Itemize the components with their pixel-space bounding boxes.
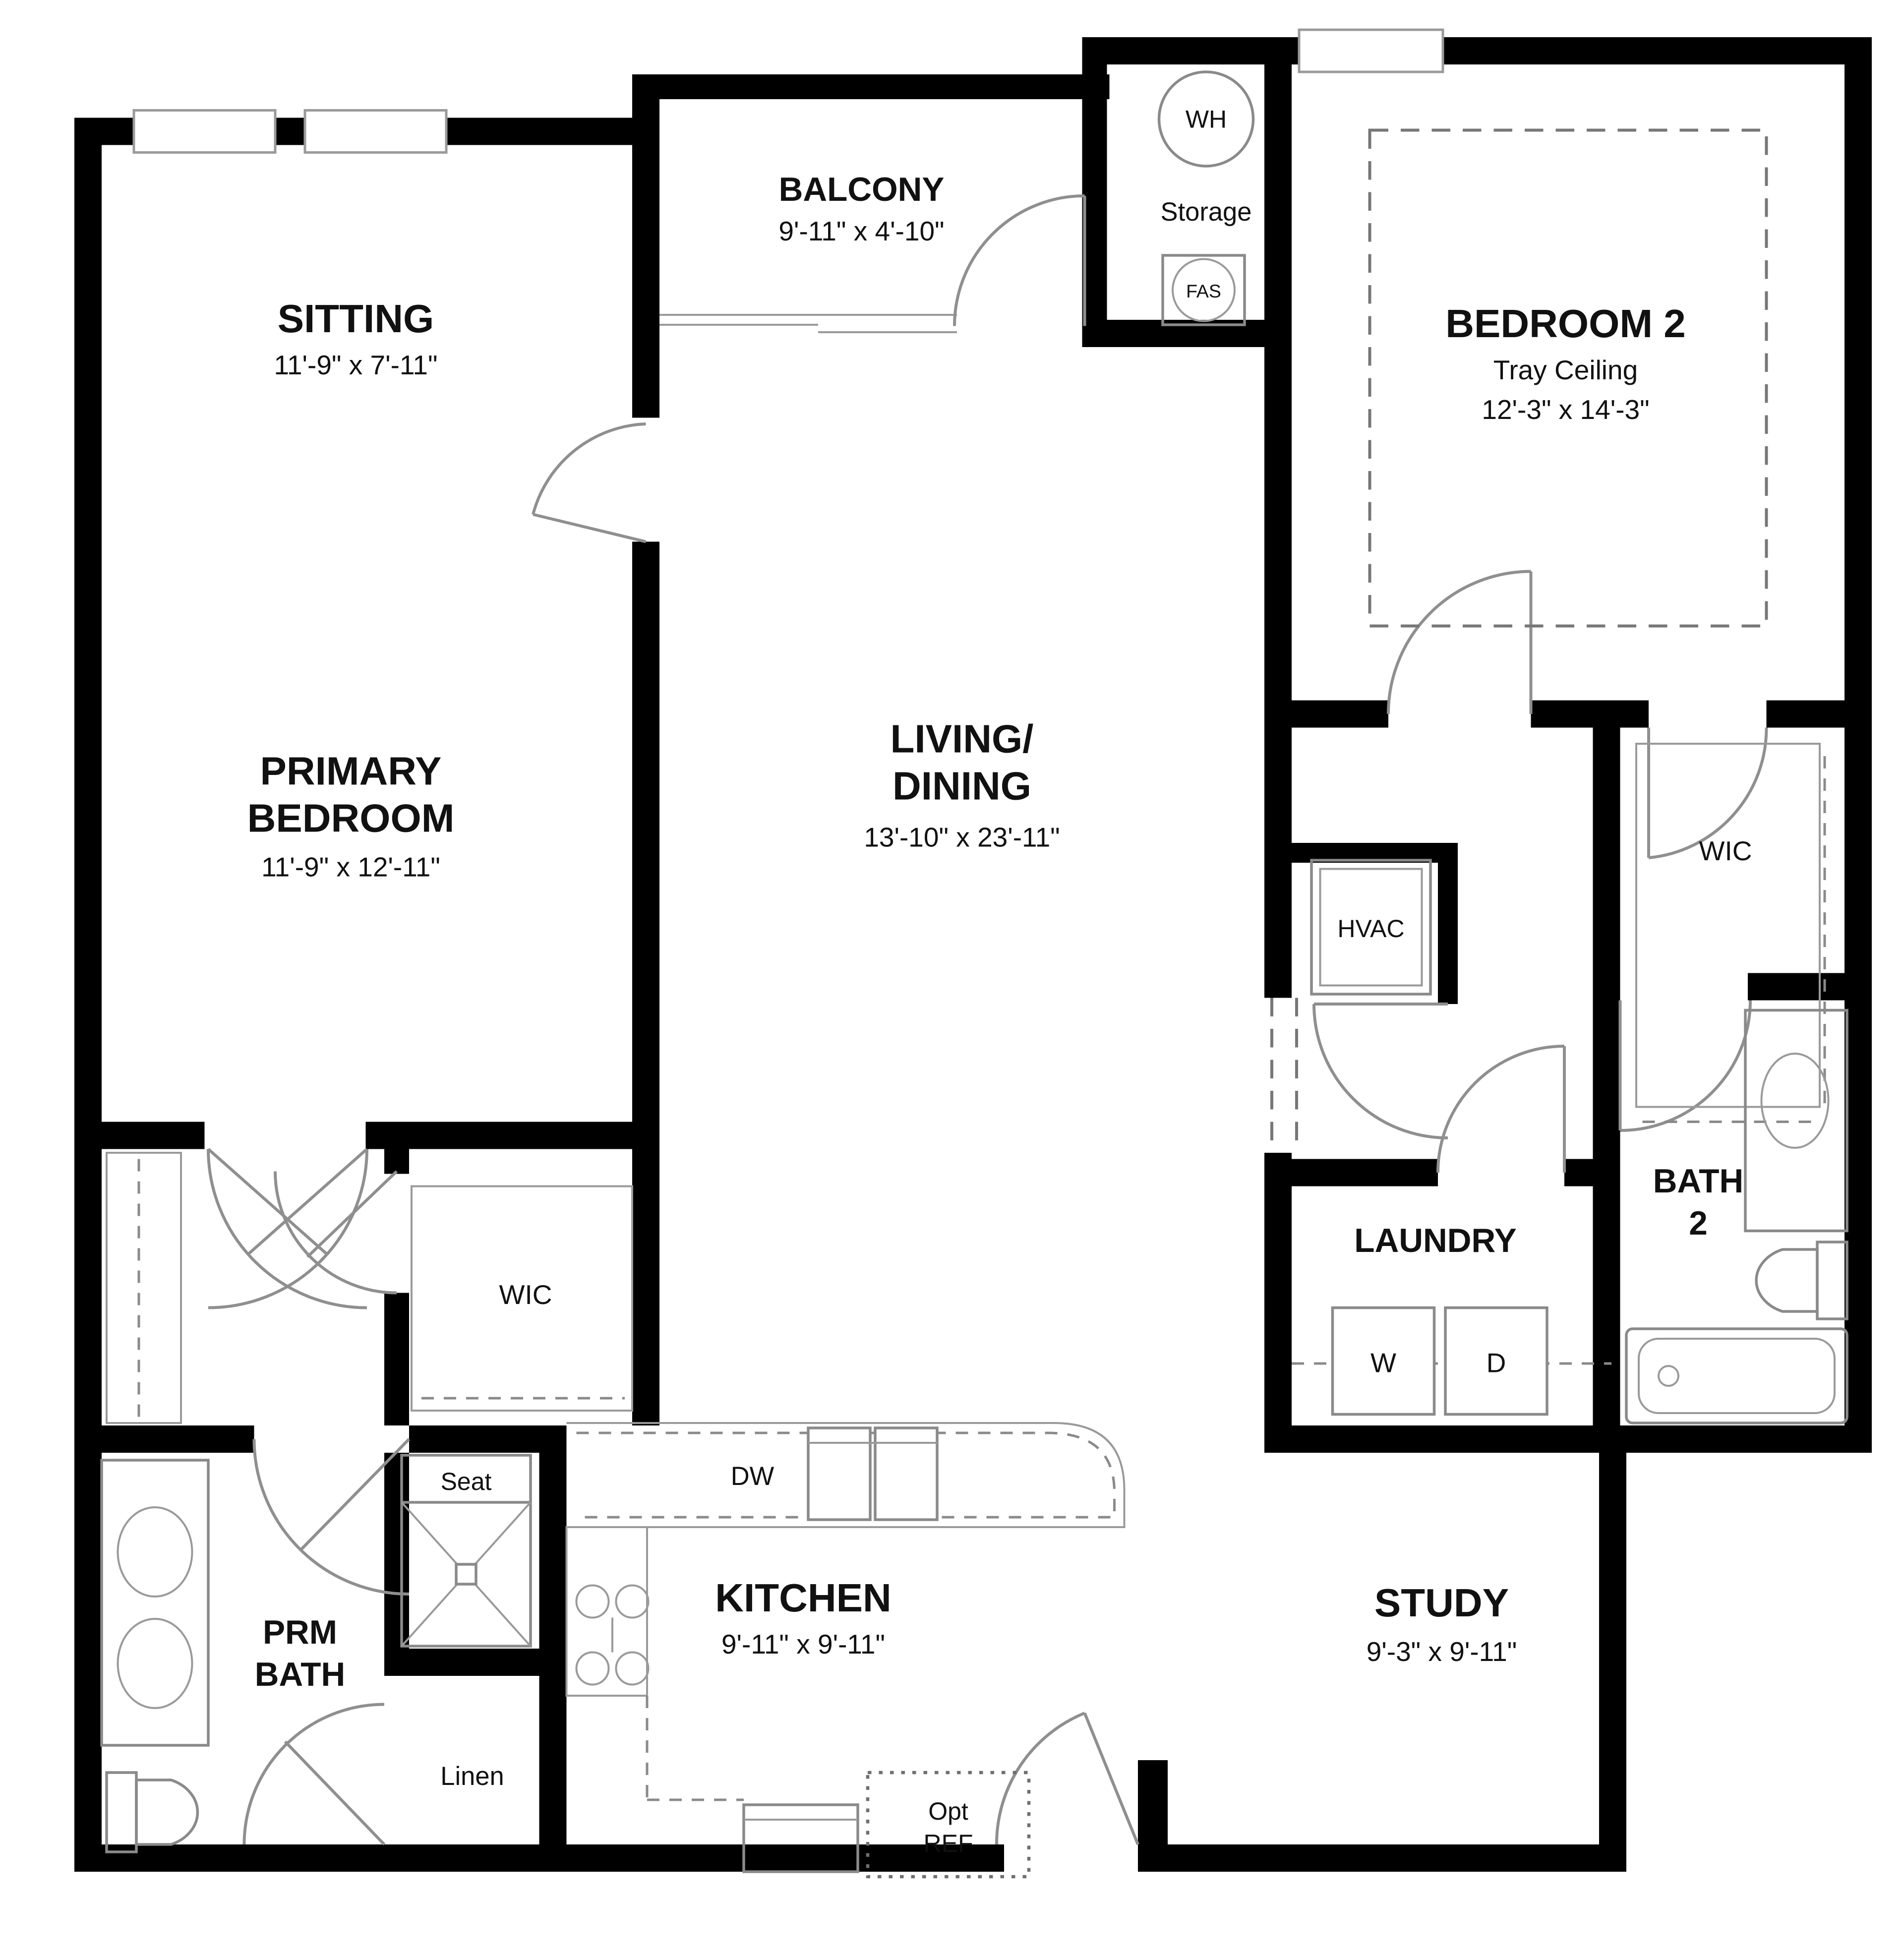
- room-label-study: STUDY: [1374, 1581, 1509, 1625]
- bath2-door: [1620, 1001, 1751, 1131]
- double-vanity: [102, 1460, 208, 1745]
- room-label-prm-bath-line1: PRM: [263, 1614, 337, 1651]
- fan-label: FAS: [1186, 281, 1221, 301]
- opt-ref-label-line2: REF: [924, 1830, 973, 1857]
- window: [1299, 30, 1443, 72]
- room-label-primary-line1: PRIMARY: [260, 749, 442, 793]
- balcony-sliding-door: [659, 315, 957, 332]
- room-dims-balcony: 9'-11" x 4'-10": [778, 216, 944, 246]
- room-label-bath2-line2: 2: [1689, 1205, 1708, 1242]
- linen-label: Linen: [440, 1762, 504, 1791]
- primary-bath-toilet-door: [244, 1705, 385, 1845]
- cooktop-icon: [577, 1586, 649, 1685]
- room-dims-living: 13'-10" x 23'-11": [864, 822, 1060, 853]
- balcony-door: [954, 196, 1085, 326]
- washer-dryer: [1292, 1308, 1611, 1415]
- room-label-wic-bedroom2: WIC: [1699, 835, 1752, 866]
- bedroom2-door: [1388, 572, 1531, 714]
- entry-door: [997, 1713, 1138, 1844]
- room-label-bath2-line1: BATH: [1653, 1163, 1743, 1200]
- room-dims-study: 9'-3" x 9'-11": [1367, 1636, 1517, 1667]
- window: [134, 111, 275, 153]
- opt-ref-label-line1: Opt: [928, 1797, 968, 1825]
- room-dims-primary: 11'-9" x 12'-11": [261, 852, 440, 883]
- room-label-wic-primary: WIC: [499, 1279, 552, 1310]
- room-label-living-line1: LIVING/: [891, 717, 1034, 761]
- sink-cabinet: [808, 1428, 937, 1520]
- room-label-sitting: SITTING: [278, 296, 434, 341]
- laundry-door: [1438, 1046, 1564, 1173]
- room-label-laundry: LAUNDRY: [1354, 1222, 1516, 1259]
- window: [305, 111, 446, 153]
- room-label-primary-line2: BEDROOM: [247, 796, 455, 840]
- floor-plan-drawing: SITTING 11'-9" x 7'-11" BALCONY 9'-11" x…: [0, 0, 1904, 1956]
- room-label-living-line2: DINING: [892, 764, 1031, 808]
- shower-seat-label: Seat: [441, 1468, 492, 1495]
- room-ceiling-bedroom2: Tray Ceiling: [1493, 355, 1638, 385]
- closet-left: [107, 1153, 181, 1423]
- room-dims-kitchen: 9'-11" x 9'-11": [721, 1629, 885, 1660]
- primary-closet-double-doors: [208, 1149, 367, 1308]
- room-label-balcony: BALCONY: [779, 171, 945, 208]
- dryer-label: D: [1487, 1348, 1506, 1378]
- dishwasher-label: DW: [731, 1462, 774, 1491]
- room-label-hvac: HVAC: [1337, 915, 1404, 943]
- room-label-bedroom2: BEDROOM 2: [1445, 301, 1686, 346]
- wic-bedroom2-shelving: [1636, 744, 1825, 1122]
- room-label-storage: Storage: [1161, 197, 1252, 227]
- room-dims-bedroom2: 12'-3" x 14'-3": [1482, 394, 1649, 425]
- room-dims-sitting: 11'-9" x 7'-11": [274, 350, 437, 380]
- bath2-toilet-icon: [1756, 1242, 1847, 1319]
- hall-cased-opening: [1272, 998, 1297, 1153]
- room-label-prm-bath-line2: BATH: [255, 1656, 345, 1693]
- floor-plan: SITTING 11'-9" x 7'-11" BALCONY 9'-11" x…: [0, 0, 1904, 1956]
- toilet-icon: [107, 1773, 197, 1852]
- water-heater-label: WH: [1186, 106, 1227, 133]
- wic-primary-door: [275, 1172, 397, 1293]
- washer-label: W: [1370, 1348, 1396, 1378]
- sitting-door: [533, 424, 646, 542]
- room-label-kitchen: KITCHEN: [715, 1576, 892, 1620]
- tub-icon: [1626, 1329, 1847, 1423]
- hvac-door: [1314, 1004, 1448, 1138]
